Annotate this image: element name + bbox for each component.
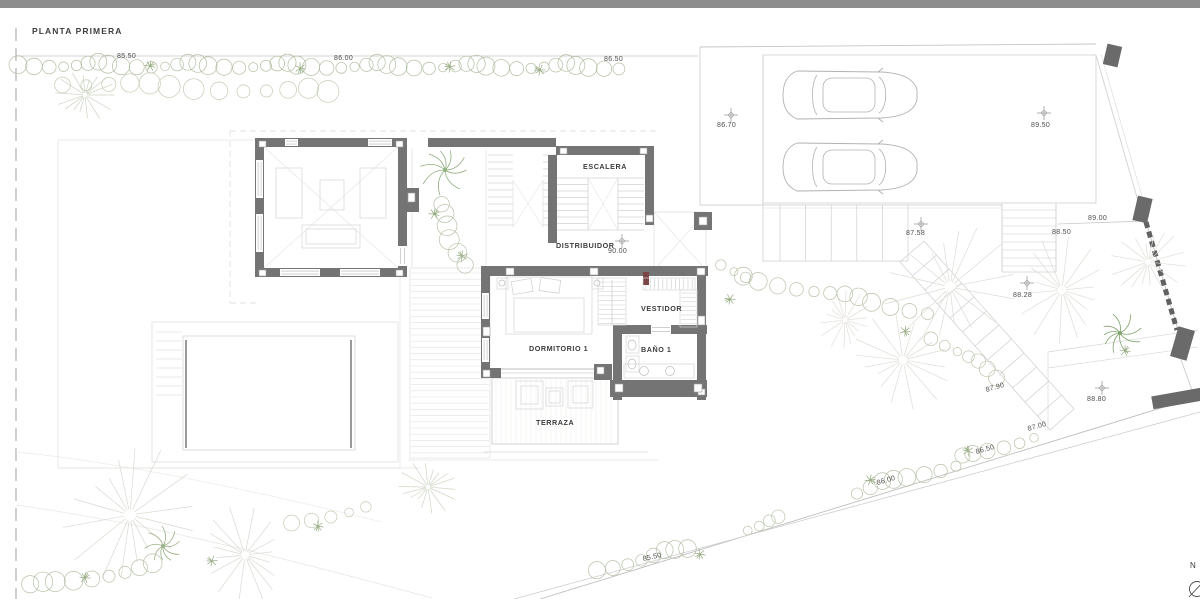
palm-tree-icon bbox=[420, 151, 466, 196]
vegetation bbox=[9, 53, 1186, 599]
elevation-label-top-86-50: 86.50 bbox=[604, 56, 623, 63]
room-label-bano1: BAÑO 1 bbox=[641, 346, 671, 353]
shrub-icon bbox=[429, 209, 440, 219]
steps-and-hatching bbox=[156, 155, 1074, 453]
elevation-label-86-70: 86.70 bbox=[717, 122, 736, 129]
elevation-label-88-28: 88.28 bbox=[1013, 292, 1032, 299]
elevation-marker-icon bbox=[1037, 106, 1051, 120]
tree-icon bbox=[399, 463, 455, 513]
floor-diagonals bbox=[264, 147, 706, 270]
elevation-label-90-00: 90.00 bbox=[608, 248, 627, 255]
tree-icon bbox=[885, 228, 1015, 340]
elevation-label-top-85-50: 85.50 bbox=[117, 53, 136, 60]
tree-icon bbox=[1021, 237, 1099, 344]
elevation-marker-icon bbox=[914, 217, 928, 231]
building-walls bbox=[255, 44, 1200, 410]
elevation-label-88-50: 88.50 bbox=[1052, 229, 1071, 236]
room-label-distribuidor: DISTRIBUIDOR bbox=[556, 242, 615, 249]
hedge-row bbox=[9, 53, 625, 76]
hedge-row bbox=[734, 267, 933, 319]
shrub-icon bbox=[1120, 346, 1131, 357]
shrub-icon bbox=[457, 251, 468, 262]
tree-icon bbox=[1111, 233, 1185, 289]
elevation-marker-icon bbox=[724, 108, 738, 122]
north-label: N bbox=[1190, 561, 1196, 570]
hedge-row bbox=[924, 332, 1004, 386]
site-plan-drawing bbox=[0, 0, 1200, 599]
shrub-icon bbox=[725, 294, 736, 304]
north-arrow-icon bbox=[1189, 581, 1200, 597]
shrub-icon bbox=[207, 556, 218, 567]
plan-title: PLANTA PRIMERA bbox=[32, 26, 122, 36]
plan-canvas: PLANTA PRIMERA ESCALERA DISTRIBUIDOR DOR… bbox=[0, 0, 1200, 599]
elevation-label-89-50: 89.50 bbox=[1031, 122, 1050, 129]
hedge-row bbox=[434, 197, 473, 274]
elevation-label-89-00: 89.00 bbox=[1088, 215, 1107, 222]
room-label-terraza: TERRAZA bbox=[536, 419, 574, 426]
room-label-vestidor: VESTIDOR bbox=[641, 305, 682, 312]
elevation-marker-icon bbox=[1020, 276, 1034, 290]
elevation-label-88-80: 88.80 bbox=[1087, 396, 1106, 403]
elevation-marker-icon bbox=[1095, 381, 1109, 395]
shrub-icon bbox=[80, 573, 91, 584]
shrub-icon bbox=[313, 521, 323, 532]
tree-icon bbox=[210, 507, 274, 599]
shrub-icon bbox=[535, 65, 546, 75]
hedge-row bbox=[716, 260, 751, 283]
elevation-label-87-58: 87.58 bbox=[906, 230, 925, 237]
terrace-outlines bbox=[58, 55, 1096, 468]
shrub-icon bbox=[865, 475, 876, 486]
elevation-marker-icon bbox=[615, 234, 629, 248]
car-icon bbox=[783, 140, 917, 194]
room-label-dormitorio1: DORMITORIO 1 bbox=[529, 345, 588, 352]
car-icon bbox=[783, 68, 917, 122]
hedge-row bbox=[22, 554, 163, 593]
room-label-escalera: ESCALERA bbox=[583, 163, 627, 170]
elevation-label-top-86-00: 86.00 bbox=[334, 55, 353, 62]
